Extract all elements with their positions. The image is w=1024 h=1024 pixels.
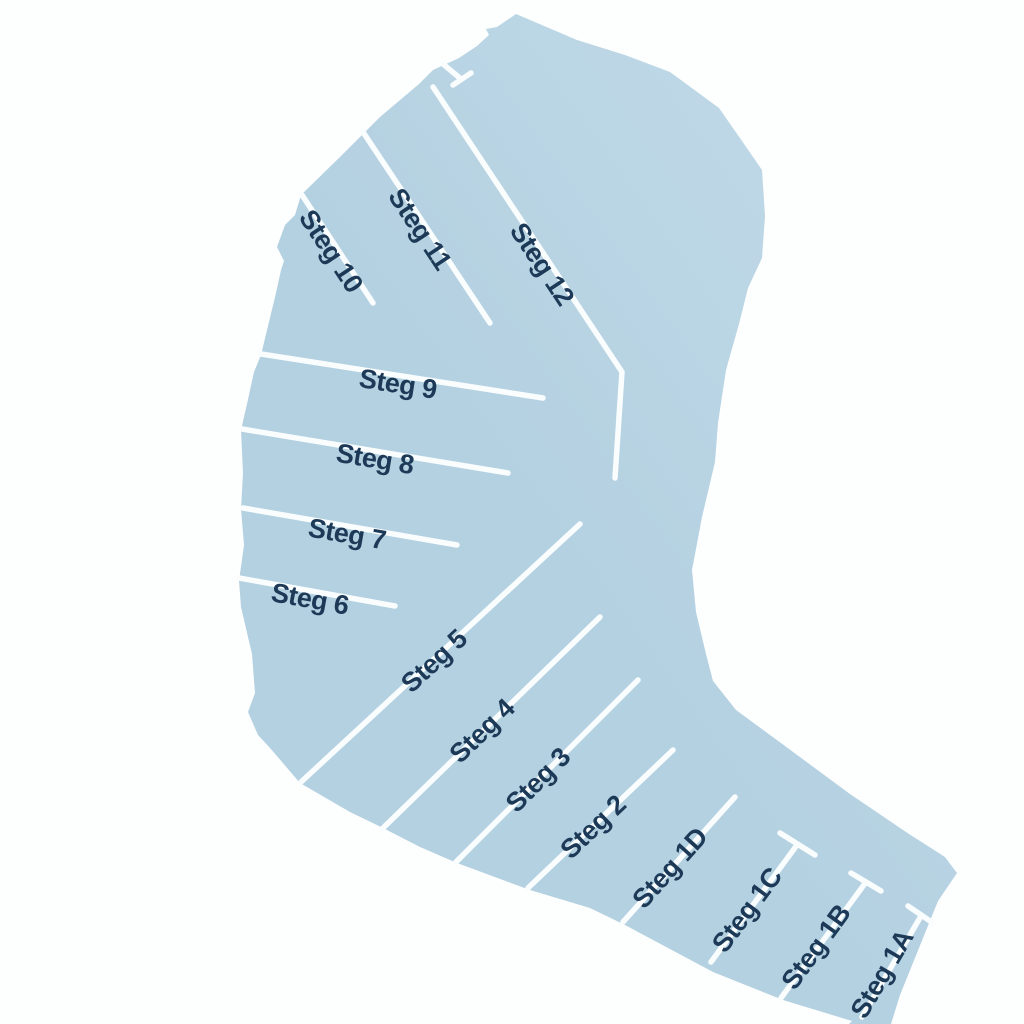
marina-map: Steg 12Steg 11Steg 10Steg 9Steg 8Steg 7S… [0,0,1024,1024]
marina-map-canvas: Steg 12Steg 11Steg 10Steg 9Steg 8Steg 7S… [0,0,1024,1024]
